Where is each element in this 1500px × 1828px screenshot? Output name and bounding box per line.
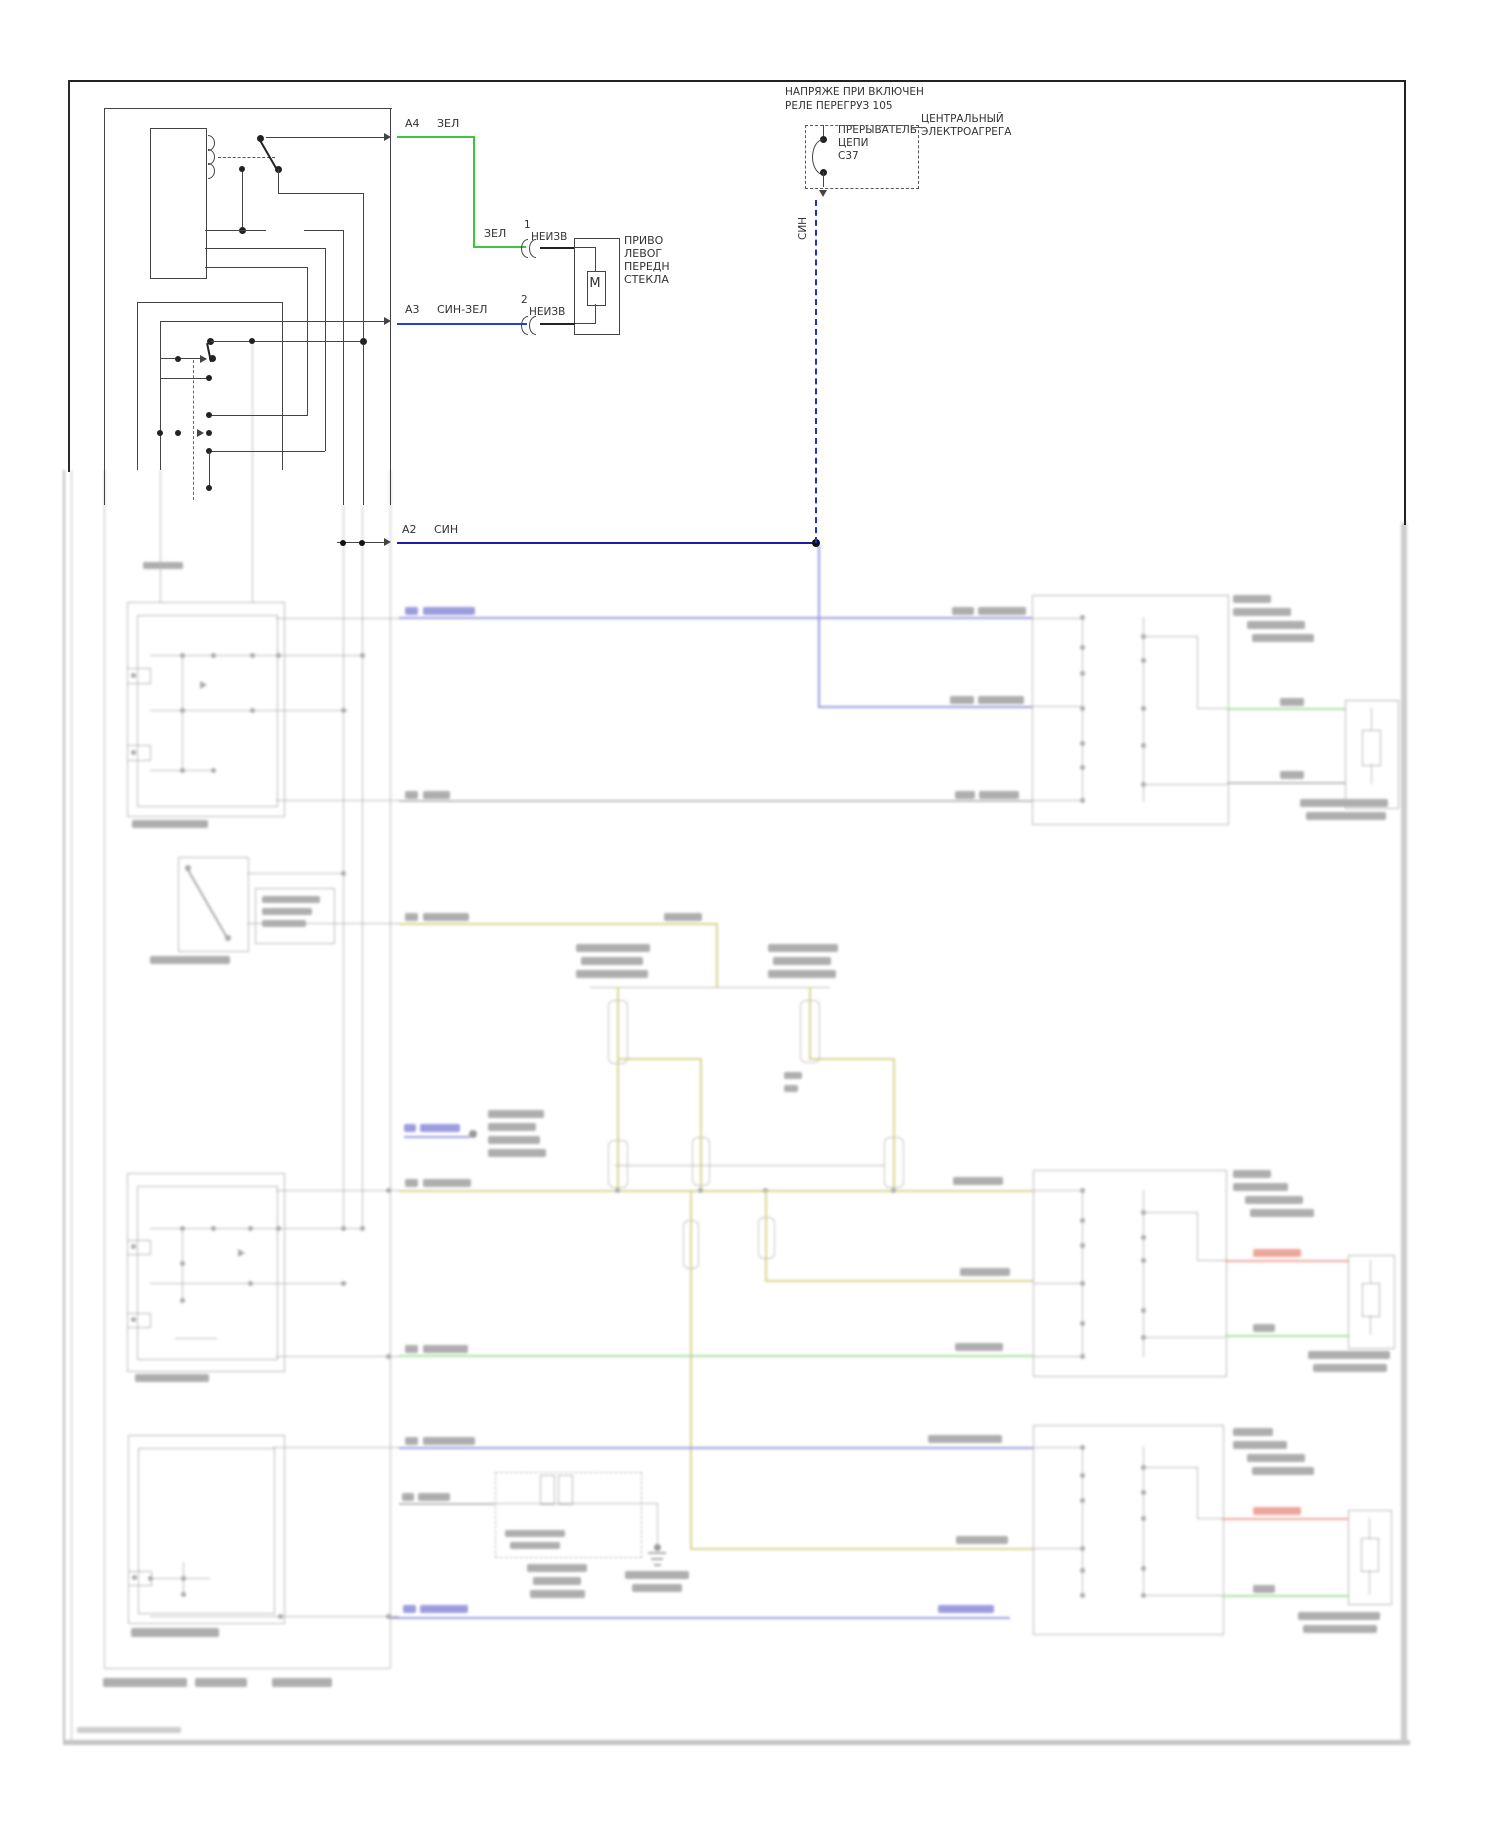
wire-horizontal — [473, 246, 526, 248]
component-box — [150, 128, 207, 279]
wire-horizontal — [210, 415, 308, 416]
arrowhead — [200, 355, 207, 363]
wire-vertical — [278, 169, 279, 193]
wire-horizontal — [210, 341, 363, 342]
wire-horizontal — [205, 267, 307, 268]
wire-vertical — [473, 136, 475, 248]
wire-horizontal — [160, 378, 210, 379]
wire-vertical — [193, 360, 194, 500]
junction-dot — [239, 166, 245, 172]
wire-horizontal — [278, 193, 363, 194]
junction-dot — [340, 540, 346, 546]
wire-a4-color-label: ЗЕЛ — [437, 118, 459, 130]
connector-arc — [529, 316, 543, 335]
connector-pin2-number: 2 — [521, 294, 528, 306]
arrowhead — [197, 429, 204, 437]
wire-vertical — [137, 302, 138, 470]
wire-vertical — [160, 321, 161, 470]
wire-vertical — [815, 200, 817, 543]
wire-diagonal — [259, 140, 277, 170]
junction-dot — [206, 430, 212, 436]
motor-name-line: СТЕКЛА — [624, 274, 670, 287]
wire-vertical — [595, 247, 596, 272]
junction-dot — [206, 485, 212, 491]
junction-dot — [359, 540, 365, 546]
junction-dot — [175, 356, 181, 362]
wire-vertical — [595, 304, 596, 324]
wire-vertical — [68, 80, 70, 472]
wire-horizontal — [540, 323, 575, 325]
wire-horizontal — [205, 248, 325, 249]
wire-vertical — [104, 108, 105, 505]
wire-vertical — [325, 248, 326, 451]
wire-a3-pin-label: A3 — [405, 304, 420, 316]
wire-vertical — [363, 193, 364, 505]
arrowhead — [384, 538, 391, 546]
wire-vertical — [823, 172, 824, 187]
sharp-diagram-section: A4 ЗЕЛ ЗЕЛ 1 НЕИЗВ 2 НЕИЗВ A3 СИН-ЗЕЛ A2… — [0, 0, 1500, 1828]
wire-a2-color-label: СИН — [434, 524, 458, 536]
wire-horizontal — [574, 247, 596, 248]
wire-horizontal — [210, 451, 325, 452]
junction-dot — [249, 338, 255, 344]
wire-horizontal — [397, 136, 475, 138]
relay-note-line1: НАПРЯЖЕ ПРИ ВКЛЮЧЕН — [785, 86, 924, 98]
wire-vertical — [1404, 80, 1406, 525]
arrowhead — [384, 133, 391, 141]
wire-horizontal — [912, 127, 922, 128]
junction-dot — [206, 412, 212, 418]
wire-vertical — [209, 451, 210, 488]
connector-pin1-number: 1 — [524, 219, 531, 231]
wire-horizontal — [304, 230, 343, 231]
wire-a4-pin-label: A4 — [405, 118, 420, 130]
wire-horizontal — [397, 323, 527, 325]
wire-horizontal — [137, 302, 282, 303]
wire-vertical — [242, 169, 243, 231]
junction-dot — [175, 430, 181, 436]
component-box — [587, 271, 606, 306]
wire-horizontal — [574, 323, 596, 324]
wire-vertical — [282, 302, 283, 470]
vertical-wire-color-label: СИН — [797, 198, 809, 240]
wire-horizontal — [397, 542, 817, 544]
junction-dot — [157, 430, 163, 436]
arrowhead — [819, 190, 827, 197]
wire-horizontal — [540, 247, 575, 249]
wire-horizontal — [160, 321, 385, 322]
wiring-diagram-page: A4 ЗЕЛ ЗЕЛ 1 НЕИЗВ 2 НЕИЗВ A3 СИН-ЗЕЛ A2… — [0, 0, 1500, 1828]
arrowhead — [384, 317, 391, 325]
motor-name-label: ПРИВО ЛЕВОГ ПЕРЕДН СТЕКЛА — [624, 235, 670, 287]
wire-a2-pin-label: A2 — [402, 524, 417, 536]
wire-vertical — [390, 108, 391, 505]
connector-pin1-terminal: НЕИЗВ — [531, 231, 567, 243]
junction-dot — [206, 375, 212, 381]
wire-horizontal — [68, 80, 1406, 82]
central-unit-line2: ЭЛЕКТРОАГРЕГА — [921, 126, 1011, 138]
wire-a3-color-label: СИН-ЗЕЛ — [437, 304, 487, 316]
wire-vertical — [343, 230, 344, 505]
relay-note-line2: РЕЛЕ ПЕРЕГРУЗ 105 — [785, 100, 893, 112]
junction-dot — [360, 338, 367, 345]
wire-horizontal — [266, 137, 384, 138]
wire-horizontal — [218, 157, 275, 158]
central-unit-line1: ЦЕНТРАЛЬНЫЙ — [921, 113, 1004, 125]
wire-horizontal — [104, 108, 392, 109]
wire-horizontal — [205, 230, 266, 231]
wire-green-segment-label: ЗЕЛ — [484, 228, 506, 240]
